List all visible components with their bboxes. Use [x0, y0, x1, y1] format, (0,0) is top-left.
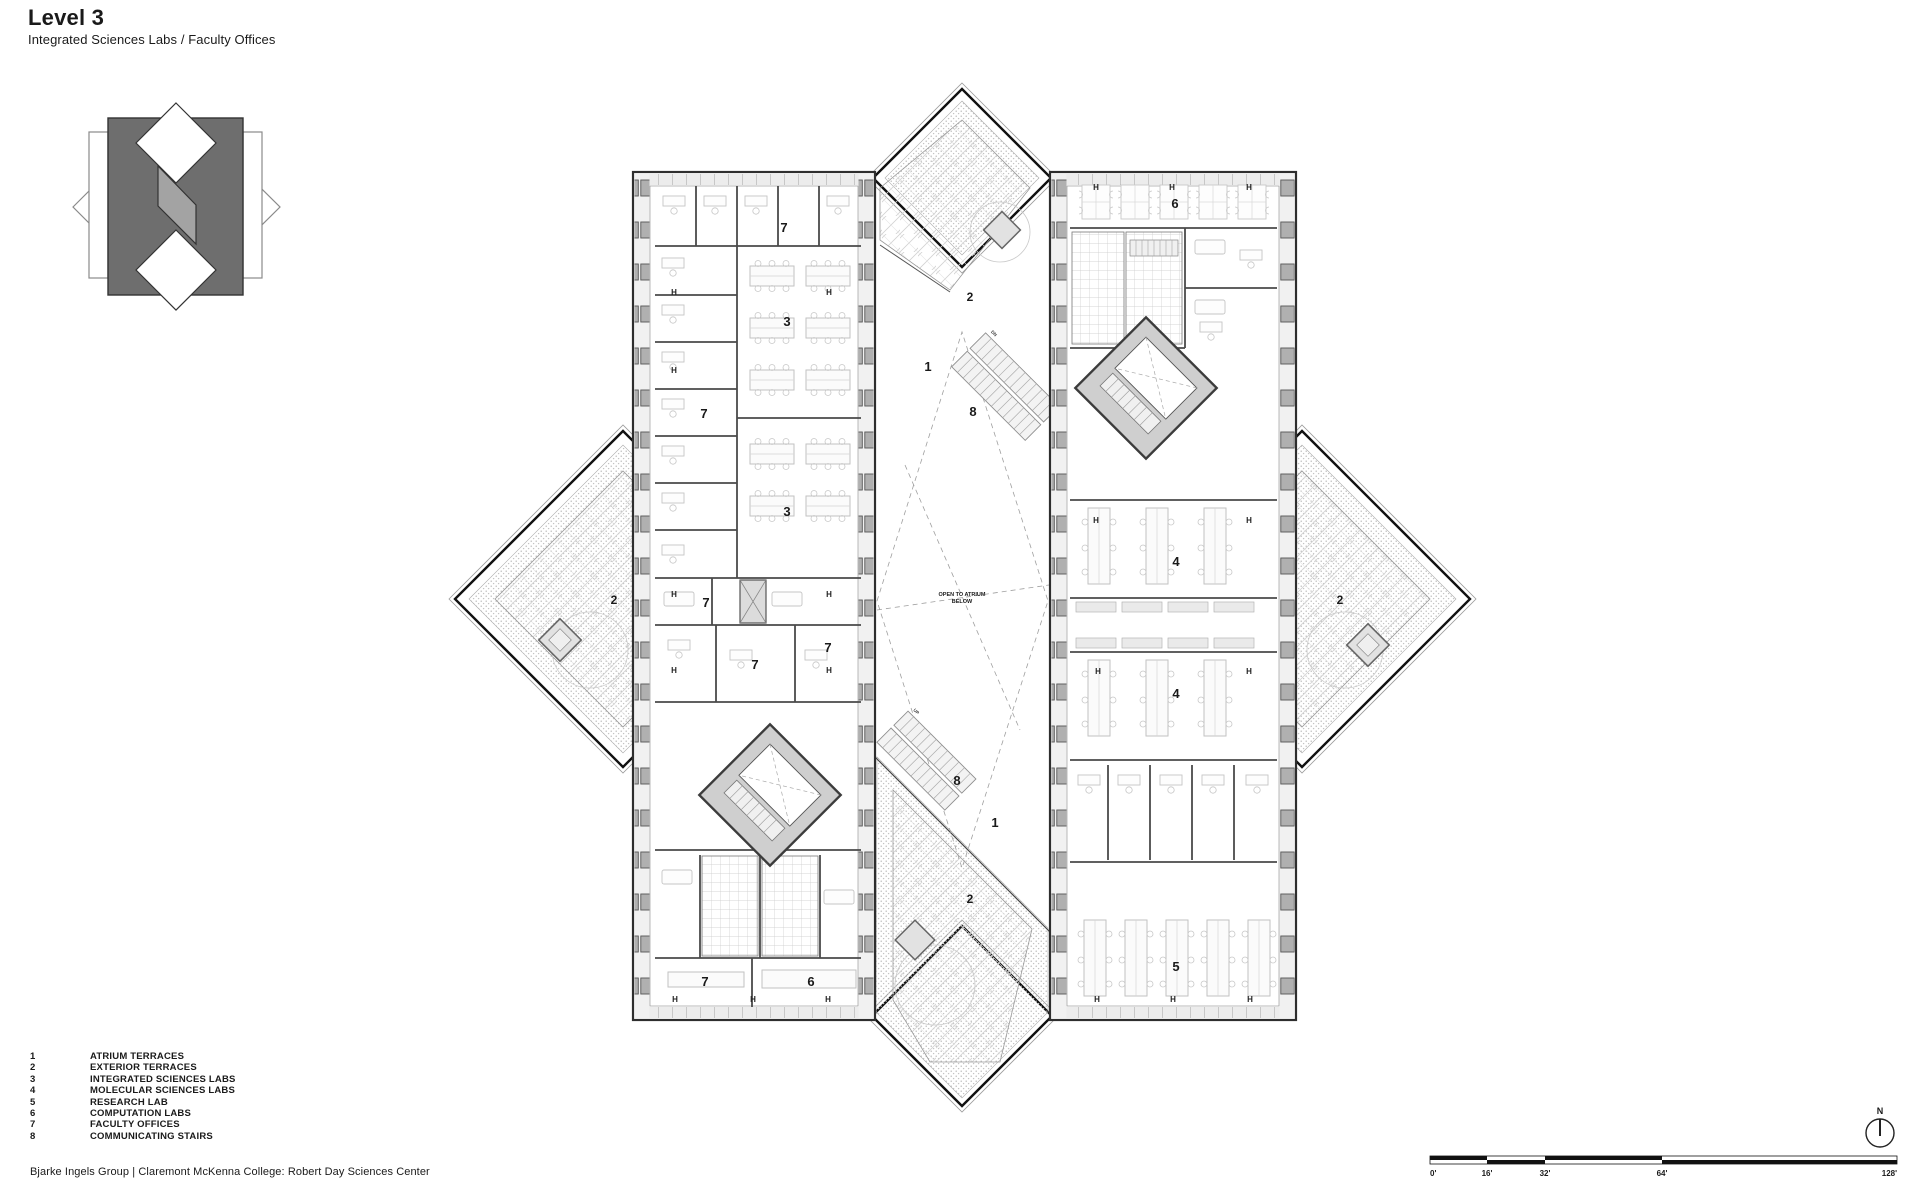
- scale-tick: 64': [1657, 1169, 1668, 1178]
- h-marker: H: [825, 995, 831, 1004]
- h-marker: H: [826, 288, 832, 297]
- scale-tick: 128': [1882, 1169, 1897, 1178]
- scale-tick: 0': [1430, 1169, 1436, 1178]
- north-label: N: [1877, 1106, 1884, 1116]
- room-number: 7: [700, 406, 707, 421]
- h-marker: H: [1246, 183, 1252, 192]
- h-marker: H: [1169, 183, 1175, 192]
- room-number: 7: [824, 640, 831, 655]
- room-number: 4: [1172, 686, 1180, 701]
- room-number: 2: [1337, 593, 1344, 607]
- h-marker: H: [750, 995, 756, 1004]
- room-number: 4: [1172, 554, 1180, 569]
- h-marker: H: [826, 666, 832, 675]
- h-marker: H: [1247, 995, 1253, 1004]
- room-number: 7: [780, 220, 787, 235]
- floor-plan-drawing: DN UP OPEN TO ATRIUM BELOW: [0, 0, 1920, 1182]
- room-number: 3: [783, 504, 790, 519]
- h-marker: H: [1246, 667, 1252, 676]
- h-marker: H: [671, 288, 677, 297]
- room-number: 3: [783, 314, 790, 329]
- h-marker: H: [1246, 516, 1252, 525]
- room-number: 7: [702, 595, 709, 610]
- h-marker: H: [1093, 516, 1099, 525]
- room-number: 2: [611, 593, 618, 607]
- north-arrow-icon: N: [1866, 1106, 1894, 1147]
- h-marker: H: [671, 590, 677, 599]
- big-massing-logo-icon: [73, 103, 280, 310]
- room-number: 5: [1172, 959, 1179, 974]
- room-number: 1: [991, 815, 998, 830]
- room-number: 7: [751, 657, 758, 672]
- h-marker: H: [1170, 995, 1176, 1004]
- room-number: 2: [967, 892, 974, 906]
- h-marker: H: [1093, 183, 1099, 192]
- h-marker: H: [1094, 995, 1100, 1004]
- h-marker: H: [671, 666, 677, 675]
- drawing-sheet: Level 3 Integrated Sciences Labs / Facul…: [0, 0, 1920, 1182]
- room-number: 8: [969, 404, 976, 419]
- room-number: 7: [701, 974, 708, 989]
- open-to-atrium-note: OPEN TO ATRIUM: [939, 592, 986, 598]
- scale-tick: 32': [1540, 1169, 1551, 1178]
- west-wing: [633, 172, 875, 1020]
- open-to-atrium-note: BELOW: [952, 599, 973, 605]
- scale-tick: 16': [1482, 1169, 1493, 1178]
- h-marker: H: [672, 995, 678, 1004]
- room-number: 6: [807, 974, 814, 989]
- east-wing: [1050, 172, 1296, 1020]
- atrium: DN UP OPEN TO ATRIUM BELOW: [866, 83, 1065, 1112]
- scale-bar: 0' 16' 32' 64' 128': [1430, 1156, 1897, 1178]
- room-number: 8: [953, 773, 960, 788]
- room-number: 1: [924, 359, 931, 374]
- h-marker: H: [1095, 667, 1101, 676]
- h-marker: H: [671, 366, 677, 375]
- room-number: 6: [1171, 196, 1178, 211]
- h-marker: H: [826, 590, 832, 599]
- room-number: 2: [967, 290, 974, 304]
